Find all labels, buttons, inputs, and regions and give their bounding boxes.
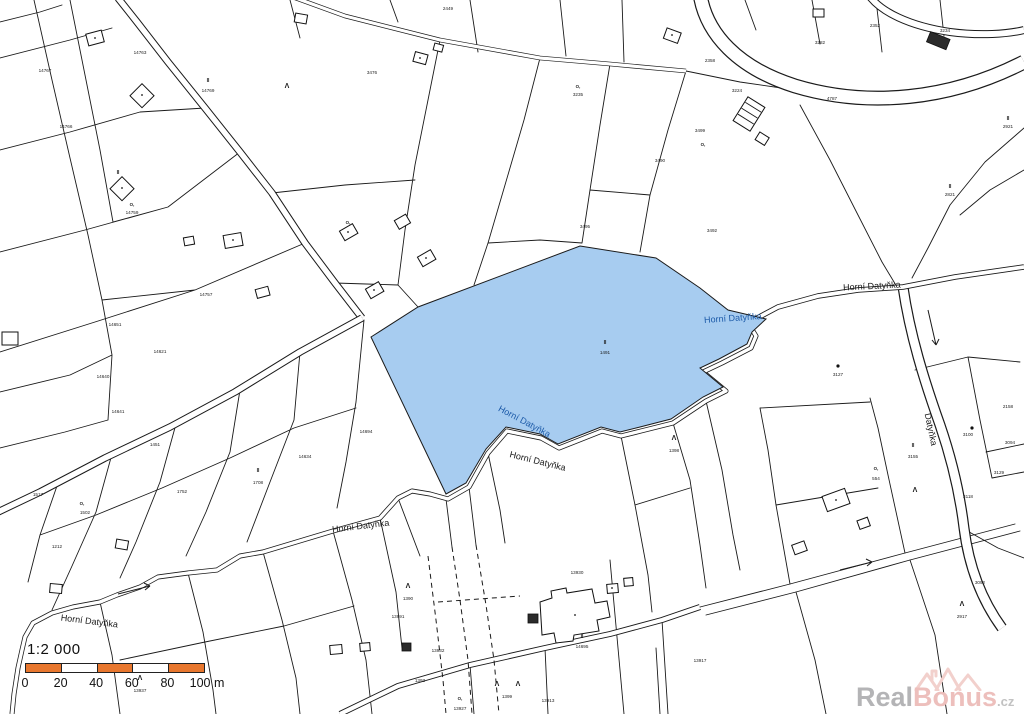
landuse-symbol: II xyxy=(207,78,210,84)
landuse-symbol: II xyxy=(912,443,915,449)
parcel-number: 13917 xyxy=(694,658,707,663)
landuse-symbol: O, xyxy=(874,466,879,471)
landuse-symbol: II xyxy=(117,170,120,176)
parcel-number: 1390 xyxy=(403,596,414,601)
scale-tick-label: 60 xyxy=(125,676,139,690)
parcel-number: 2921 xyxy=(1003,124,1014,129)
landuse-symbol: O, xyxy=(458,696,463,701)
scale-segment xyxy=(132,664,168,672)
scale-tick-label: 20 xyxy=(54,676,68,690)
landuse-symbol: Λ xyxy=(960,601,965,608)
parcel-number: 14766 xyxy=(60,124,73,129)
parcel-number: 3235 xyxy=(573,92,584,97)
scale-bar-ticks: 020406080100 m xyxy=(25,676,265,692)
scale-tick-label: 0 xyxy=(22,676,29,690)
landuse-symbol: Λ xyxy=(495,681,500,688)
stream-name-label: Horní Datyňka xyxy=(331,518,389,535)
parcel-number: 554 xyxy=(872,476,880,481)
landuse-symbol: Λ xyxy=(285,83,290,90)
stream-name-label: Horní Datyňka xyxy=(60,613,118,630)
parcel-number: 3118 xyxy=(963,494,973,499)
parcel-number: 3282 xyxy=(815,40,826,45)
scale-tick-label: 40 xyxy=(89,676,103,690)
parcel-number: 14694 xyxy=(360,429,373,434)
parcel-number: 1708 xyxy=(253,480,264,485)
parcel-number: 14640 xyxy=(97,374,110,379)
parcel-number: 14641 xyxy=(112,409,125,414)
parcel-number: 1451 xyxy=(150,442,161,447)
parcel-number: 13930 xyxy=(571,570,584,575)
scale-segment xyxy=(97,664,133,672)
parcel-number: 3234 xyxy=(940,28,951,33)
landuse-symbol: II xyxy=(949,184,952,190)
parcel-number: 14695 xyxy=(576,644,589,649)
parcel-number: 14621 xyxy=(154,349,167,354)
cadastral-map: ΛΛΛΛΛΛΛΛIIIIIIIIIIIIIIO,O,O,O,O,O,O, 147… xyxy=(0,0,1024,714)
parcel-number: 1393 xyxy=(415,678,426,683)
parcel-number: 1752 xyxy=(177,489,188,494)
parcel-number: 3155 xyxy=(908,454,919,459)
landuse-symbol: Λ xyxy=(672,435,677,442)
scale-segment xyxy=(61,664,97,672)
parcel-number: 13991 xyxy=(392,614,405,619)
landuse-symbol: Λ xyxy=(516,681,521,688)
landuse-symbol: O, xyxy=(130,202,135,207)
parcel-number: 14634 xyxy=(299,454,312,459)
landuse-symbol: Λ xyxy=(913,487,918,494)
stream-name-label: Horní Datyňka xyxy=(843,280,901,293)
scale-bar-segments xyxy=(25,663,205,673)
scale-segment xyxy=(168,664,204,672)
parcel-number: 1398 xyxy=(669,448,680,453)
parcel-number: 3476 xyxy=(367,70,378,75)
landuse-symbol: II xyxy=(257,468,260,474)
parcel-number: 3100 xyxy=(963,432,974,437)
parcel-number: 14769 xyxy=(202,88,215,93)
parcel-number: 3129 xyxy=(994,470,1005,475)
scale-ratio: 1:2 000 xyxy=(27,641,265,658)
parcel-number: 3499 xyxy=(695,128,706,133)
parcel-number: 2917 xyxy=(957,614,968,619)
parcel-number: 1399 xyxy=(502,694,513,699)
parcel-number: 14763 xyxy=(134,50,147,55)
landuse-symbol: II xyxy=(1007,116,1010,122)
landuse-symbol: O, xyxy=(346,220,351,225)
parcel-number: 1212 xyxy=(52,544,63,549)
parcel-number: 14759 xyxy=(126,210,139,215)
parcel-number: 13932 xyxy=(432,648,445,653)
map-canvas: ΛΛΛΛΛΛΛΛIIIIIIIIIIIIIIO,O,O,O,O,O,O, 147… xyxy=(0,0,1024,714)
parcel-number: 3495 xyxy=(580,224,591,229)
landuse-symbol: O, xyxy=(576,84,581,89)
parcel-number: 13927 xyxy=(454,706,467,711)
highlighted-parcel-number: 1491 xyxy=(600,350,611,355)
parcel-number: 2821 xyxy=(945,192,956,197)
parcel-number: 1502 xyxy=(80,510,91,515)
landuse-symbol: O, xyxy=(80,501,85,506)
parcel-number: 3094 xyxy=(1005,440,1016,445)
scale-segment xyxy=(26,664,61,672)
dashed-paths xyxy=(428,545,520,714)
landuse-symbol: Λ xyxy=(406,583,411,590)
parcel-number: 3490 xyxy=(655,158,666,163)
parcel-number: 2449 xyxy=(443,6,454,11)
survey-point-dot xyxy=(836,364,839,367)
parcel-number: 13913 xyxy=(542,698,555,703)
parcel-number: 1517 xyxy=(33,492,44,497)
scale-tick-label: 100 m xyxy=(190,676,225,690)
parcel-number: 2158 xyxy=(1003,404,1014,409)
parcel-number: 4787 xyxy=(827,96,838,101)
parcel-number: 2352 xyxy=(870,23,881,28)
parcel-number: 14767 xyxy=(39,68,52,73)
parcel-number: 2358 xyxy=(705,58,716,63)
parcel-number: 14757 xyxy=(200,292,213,297)
parcel-number: 3127 xyxy=(833,372,844,377)
stream-name-label: Horní Datyňka xyxy=(509,449,567,473)
parcel-number: 3092 xyxy=(975,580,986,585)
parcel-number: 3492 xyxy=(707,228,718,233)
parcel-number: 3224 xyxy=(732,88,743,93)
parcel-number: 14651 xyxy=(109,322,122,327)
scale-tick-label: 80 xyxy=(160,676,174,690)
landuse-symbol: O, xyxy=(701,142,706,147)
scale-bar: 1:2 000 020406080100 m xyxy=(25,641,265,692)
survey-point-dot xyxy=(970,426,973,429)
